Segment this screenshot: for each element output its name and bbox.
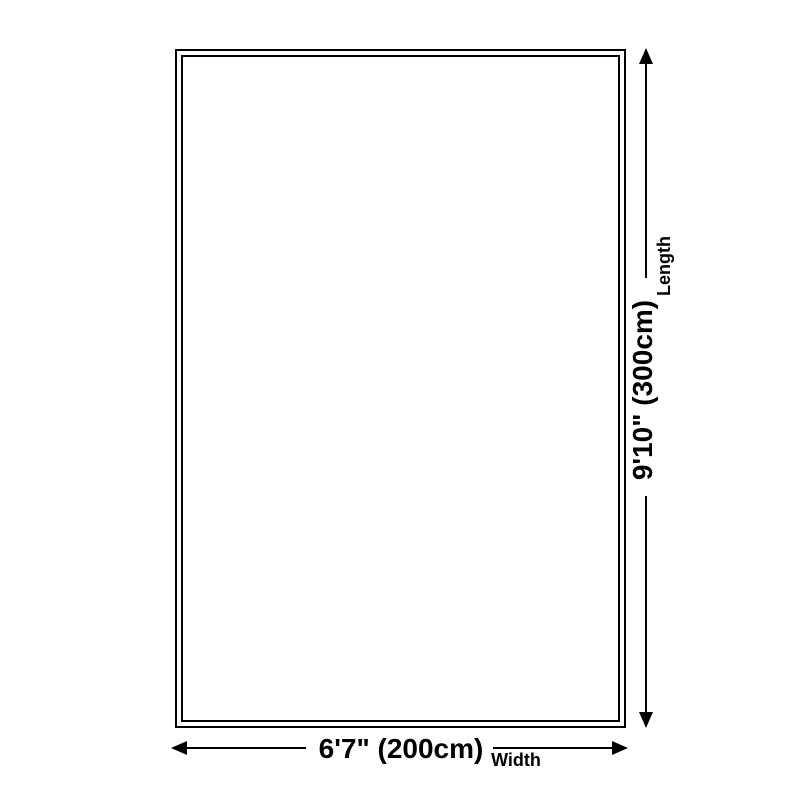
length-arrow-line-top: [645, 62, 648, 278]
rug-dimension-diagram: Length 9'10" (300cm) 6'7" (200cm) Width: [0, 0, 800, 800]
width-arrow-line-left: [186, 747, 306, 750]
rug-outline-inner: [181, 55, 620, 722]
rug-outline: [175, 49, 626, 728]
width-label: Width: [471, 748, 561, 772]
length-value: 9'10" (300cm): [623, 280, 663, 500]
length-arrow-down-icon: [639, 712, 653, 728]
width-arrow-right-icon: [612, 741, 628, 755]
length-arrow-line-bottom: [645, 496, 648, 714]
width-arrow-left-icon: [171, 741, 187, 755]
